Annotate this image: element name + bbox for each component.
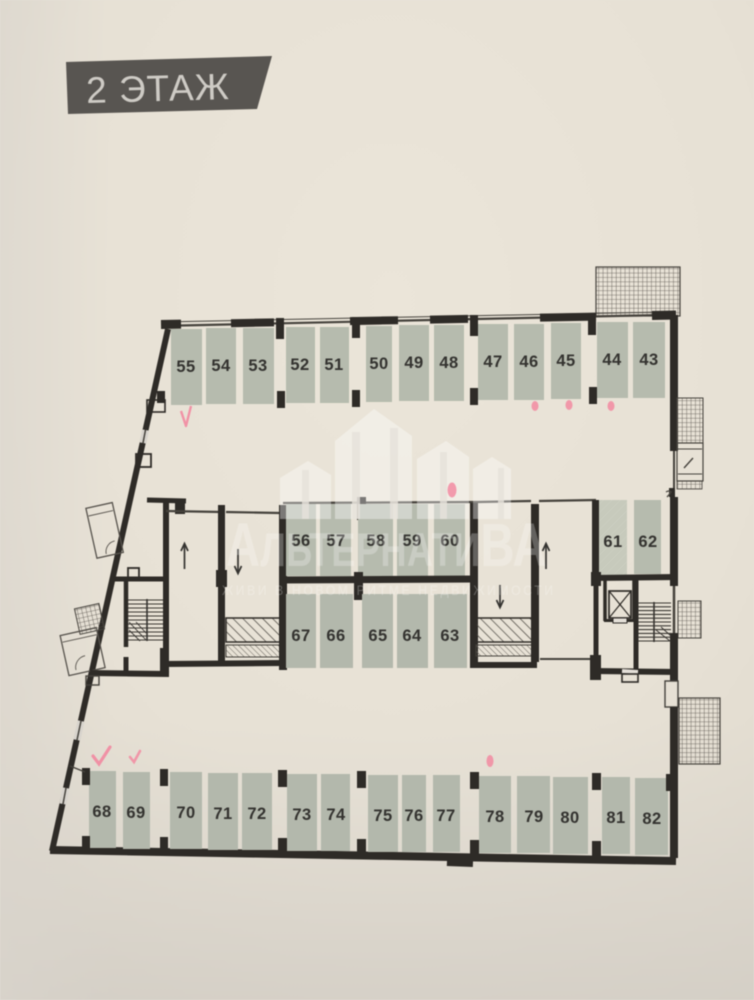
svg-text:62: 62 bbox=[638, 533, 657, 551]
svg-text:75: 75 bbox=[373, 807, 392, 825]
svg-text:81: 81 bbox=[606, 809, 625, 827]
svg-text:71: 71 bbox=[213, 805, 232, 823]
svg-text:70: 70 bbox=[176, 804, 195, 822]
svg-text:64: 64 bbox=[402, 627, 422, 645]
svg-text:2 ЭТАЖ: 2 ЭТАЖ bbox=[86, 66, 231, 111]
svg-text:65: 65 bbox=[368, 627, 387, 645]
svg-text:44: 44 bbox=[602, 351, 622, 369]
svg-text:49: 49 bbox=[404, 354, 423, 372]
svg-text:78: 78 bbox=[485, 808, 504, 826]
svg-text:73: 73 bbox=[292, 806, 311, 824]
svg-text:79: 79 bbox=[524, 808, 543, 826]
svg-text:66: 66 bbox=[326, 627, 345, 645]
svg-text:74: 74 bbox=[326, 806, 346, 824]
svg-text:67: 67 bbox=[291, 627, 310, 645]
svg-text:68: 68 bbox=[92, 803, 111, 821]
svg-text:52: 52 bbox=[290, 356, 309, 374]
svg-text:45: 45 bbox=[556, 352, 575, 370]
svg-text:82: 82 bbox=[642, 810, 661, 828]
svg-text:46: 46 bbox=[519, 353, 538, 371]
svg-text:51: 51 bbox=[324, 356, 343, 374]
svg-text:ЖИВИ В НОВОМ РИТМЕ НЕДВИЖИМОСТ: ЖИВИ В НОВОМ РИТМЕ НЕДВИЖИМОСТИ bbox=[222, 582, 554, 598]
svg-text:72: 72 bbox=[247, 805, 266, 823]
svg-text:69: 69 bbox=[126, 804, 145, 822]
svg-text:76: 76 bbox=[404, 807, 423, 825]
svg-text:48: 48 bbox=[439, 354, 458, 372]
svg-text:54: 54 bbox=[211, 357, 231, 375]
svg-text:55: 55 bbox=[176, 358, 195, 376]
svg-text:61: 61 bbox=[603, 533, 622, 551]
svg-text:47: 47 bbox=[483, 353, 502, 371]
svg-text:63: 63 bbox=[440, 627, 459, 645]
svg-text:43: 43 bbox=[639, 351, 658, 369]
svg-text:77: 77 bbox=[436, 807, 455, 825]
svg-text:80: 80 bbox=[560, 809, 579, 827]
svg-text:50: 50 bbox=[369, 355, 388, 373]
svg-text:53: 53 bbox=[248, 357, 267, 375]
